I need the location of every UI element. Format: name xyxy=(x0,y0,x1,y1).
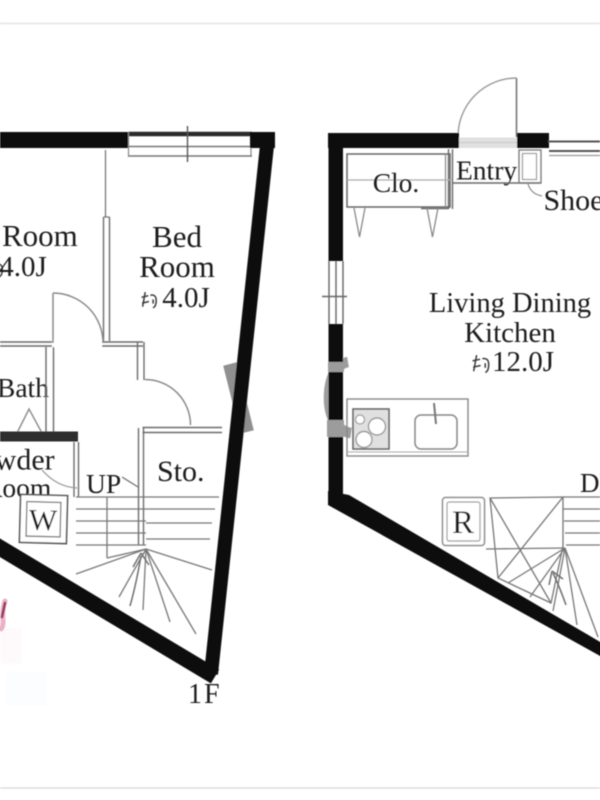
svg-text:Clo.: Clo. xyxy=(373,167,420,198)
svg-text:UP: UP xyxy=(86,468,121,499)
svg-text:Shoes: Shoes xyxy=(544,184,600,217)
svg-text:1F: 1F xyxy=(188,679,222,710)
svg-text:DN: DN xyxy=(580,468,600,498)
svg-text:Room: Room xyxy=(139,249,215,284)
svg-text:4.0J: 4.0J xyxy=(0,251,47,283)
svg-text:Sto.: Sto. xyxy=(157,455,205,488)
svg-text:Bed Room: Bed Room xyxy=(0,218,78,253)
svg-text:Kitchen: Kitchen xyxy=(464,317,556,349)
svg-text:Entry: Entry xyxy=(456,155,517,186)
svg-text:Living Dining: Living Dining xyxy=(429,288,591,319)
svg-text:4.0J: 4.0J xyxy=(162,282,210,314)
svg-text:12.0J: 12.0J xyxy=(492,346,554,378)
svg-text:R: R xyxy=(452,505,474,541)
svg-text:Bath: Bath xyxy=(0,372,49,403)
svg-text:W: W xyxy=(28,504,58,538)
